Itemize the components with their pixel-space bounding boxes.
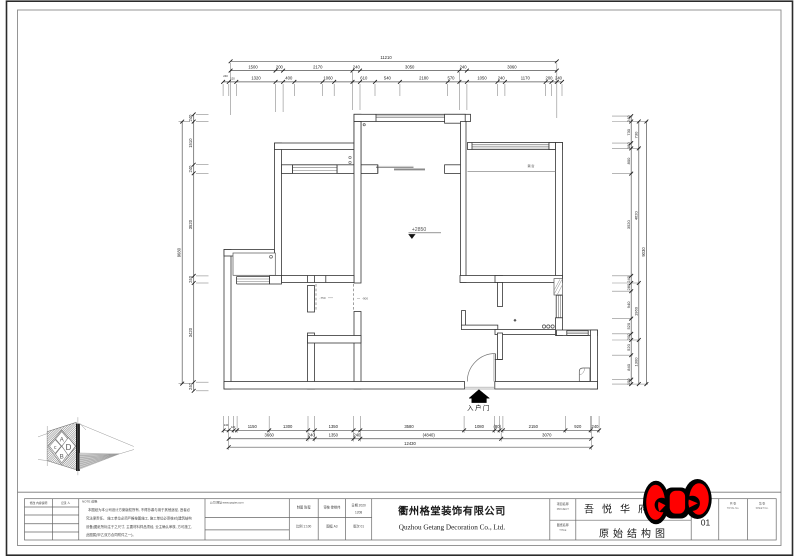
svg-text:200: 200: [546, 76, 554, 81]
svg-text:NOTE 说明:: NOTE 说明:: [82, 499, 98, 504]
svg-text:1150: 1150: [248, 424, 258, 429]
svg-text:1080: 1080: [475, 424, 485, 429]
svg-text:第 张: 第 张: [759, 502, 766, 506]
svg-text:图幅 A3: 图幅 A3: [326, 524, 337, 529]
svg-text:4620: 4620: [633, 210, 638, 220]
svg-text:本图纸为本公司设计方案版权所有, 不得抄袭与用于其他途径,: 本图纸为本公司设计方案版权所有, 不得抄袭与用于其他途径, 违者必: [88, 507, 191, 512]
svg-text:c: c: [54, 445, 57, 451]
svg-text:240: 240: [223, 74, 228, 78]
svg-text:730: 730: [626, 128, 631, 135]
svg-text:1050: 1050: [477, 76, 487, 81]
svg-text:240: 240: [353, 64, 361, 69]
svg-text:11210: 11210: [380, 55, 392, 60]
svg-text:1510: 1510: [188, 138, 193, 148]
svg-text:3520: 3520: [626, 219, 631, 229]
svg-text:240: 240: [188, 275, 193, 283]
svg-text:570: 570: [448, 76, 456, 81]
svg-text:520: 520: [626, 322, 631, 329]
svg-text:1060: 1060: [323, 76, 333, 81]
svg-text:3580: 3580: [404, 424, 414, 429]
svg-text:2150: 2150: [529, 424, 539, 429]
svg-text:制图 陈程: 制图 陈程: [297, 505, 311, 510]
svg-text:1170: 1170: [521, 76, 531, 81]
svg-text:200: 200: [626, 333, 631, 340]
svg-text:9680: 9680: [177, 247, 182, 257]
svg-text:-900: -900: [362, 297, 368, 301]
svg-text:240: 240: [188, 165, 193, 173]
svg-text:920: 920: [574, 424, 582, 429]
svg-text:800: 800: [626, 157, 631, 164]
svg-text:240: 240: [626, 115, 631, 122]
svg-text:540: 540: [384, 76, 392, 81]
svg-text:3050: 3050: [405, 64, 415, 69]
svg-text:1300: 1300: [633, 357, 638, 367]
svg-text:280: 280: [626, 283, 631, 290]
svg-text:240: 240: [188, 114, 193, 122]
svg-text:(4840): (4840): [423, 433, 436, 438]
svg-text:730: 730: [633, 131, 638, 138]
svg-text:2170: 2170: [313, 64, 323, 69]
svg-text:3520: 3520: [188, 219, 193, 229]
svg-text:840: 840: [626, 363, 631, 370]
svg-text:记录 人: 记录 人: [61, 501, 70, 505]
svg-text:设备)图纸所标注于之尺寸, 主要材料样品须经, 业主确认审核: 设备)图纸所标注于之尺寸, 主要材料样品须经, 业主确认审核, 方可施工,: [86, 524, 192, 529]
svg-text:TOTAL No.: TOTAL No.: [727, 507, 740, 510]
svg-text:9030: 9030: [641, 247, 646, 257]
svg-text:飘 窗: 飘 窗: [528, 163, 535, 168]
svg-text:版次 01: 版次 01: [353, 524, 364, 529]
svg-text:3060: 3060: [507, 64, 517, 69]
svg-text:1300: 1300: [283, 424, 293, 429]
svg-text:(80): (80): [493, 424, 501, 429]
svg-text:Quzhou Getang Decoration Co.,: Quzhou Getang Decoration Co., Ltd.: [399, 524, 506, 532]
svg-text:180: 180: [626, 142, 631, 149]
svg-text:240: 240: [626, 275, 631, 282]
svg-text:240: 240: [224, 423, 229, 427]
svg-text:240: 240: [498, 76, 506, 81]
svg-text:240: 240: [592, 424, 600, 429]
svg-text:1500: 1500: [248, 64, 258, 69]
svg-text:400: 400: [285, 76, 293, 81]
svg-text:图纸名称: 图纸名称: [557, 522, 569, 527]
svg-text:PROJECT: PROJECT: [557, 507, 570, 511]
svg-text:TITLE: TITLE: [559, 528, 566, 532]
svg-text:610: 610: [360, 76, 368, 81]
svg-text:此图属(甲乙双方合同附件之一)。: 此图属(甲乙双方合同附件之一)。: [86, 532, 136, 537]
svg-text:240: 240: [353, 433, 361, 438]
svg-text:+2850: +2850: [412, 227, 427, 233]
svg-text:240: 240: [460, 64, 468, 69]
svg-text:SHEET No.: SHEET No.: [756, 507, 769, 510]
svg-text:B: B: [60, 454, 64, 461]
svg-text:修改 内容说明: 修改 内容说明: [30, 501, 48, 505]
svg-text:-750: -750: [319, 296, 325, 300]
svg-text:520: 520: [626, 343, 631, 350]
svg-text:比例 1:100: 比例 1:100: [296, 524, 311, 529]
svg-text:2180: 2180: [419, 76, 429, 81]
svg-text:1320: 1320: [251, 76, 261, 81]
svg-text:公司 网址:www.qzgtzs.com: 公司 网址:www.qzgtzs.com: [210, 501, 244, 505]
svg-text:940: 940: [626, 301, 631, 308]
svg-text:3420: 3420: [188, 327, 193, 337]
svg-text:日期 2020: 日期 2020: [351, 503, 366, 508]
svg-text:A: A: [60, 438, 64, 444]
svg-text:150: 150: [626, 378, 631, 385]
svg-text:1960: 1960: [633, 306, 638, 316]
svg-text:项目名称: 项目名称: [557, 501, 569, 506]
svg-text:入户门: 入户门: [467, 403, 491, 412]
svg-text:240: 240: [188, 382, 193, 390]
svg-text:衢州格堂装饰有限公司: 衢州格堂装饰有限公司: [398, 505, 506, 518]
svg-text:120: 120: [230, 77, 235, 81]
svg-text:12430: 12430: [404, 441, 416, 446]
svg-text:3660: 3660: [265, 433, 275, 438]
svg-text:200: 200: [276, 64, 284, 69]
svg-text:D: D: [66, 443, 72, 452]
svg-text:240: 240: [555, 76, 563, 81]
svg-text:3070: 3070: [542, 433, 552, 438]
svg-text:1350: 1350: [329, 433, 339, 438]
svg-text:01: 01: [701, 518, 711, 528]
svg-text:共 张: 共 张: [730, 502, 737, 506]
svg-text:审核 徐继伟: 审核 徐继伟: [323, 505, 340, 510]
svg-text:1208: 1208: [355, 511, 362, 515]
svg-text:240: 240: [308, 433, 316, 438]
svg-text:原始结构图: 原始结构图: [599, 527, 669, 540]
svg-text:1350: 1350: [329, 424, 339, 429]
svg-text:究法律责任。 施工单位必须严格按图施工, 施工单位必须: 究法律责任。 施工单位必须严格按图施工, 施工单位必须核对(建筑结构: [86, 516, 192, 521]
svg-text:120: 120: [231, 425, 236, 429]
